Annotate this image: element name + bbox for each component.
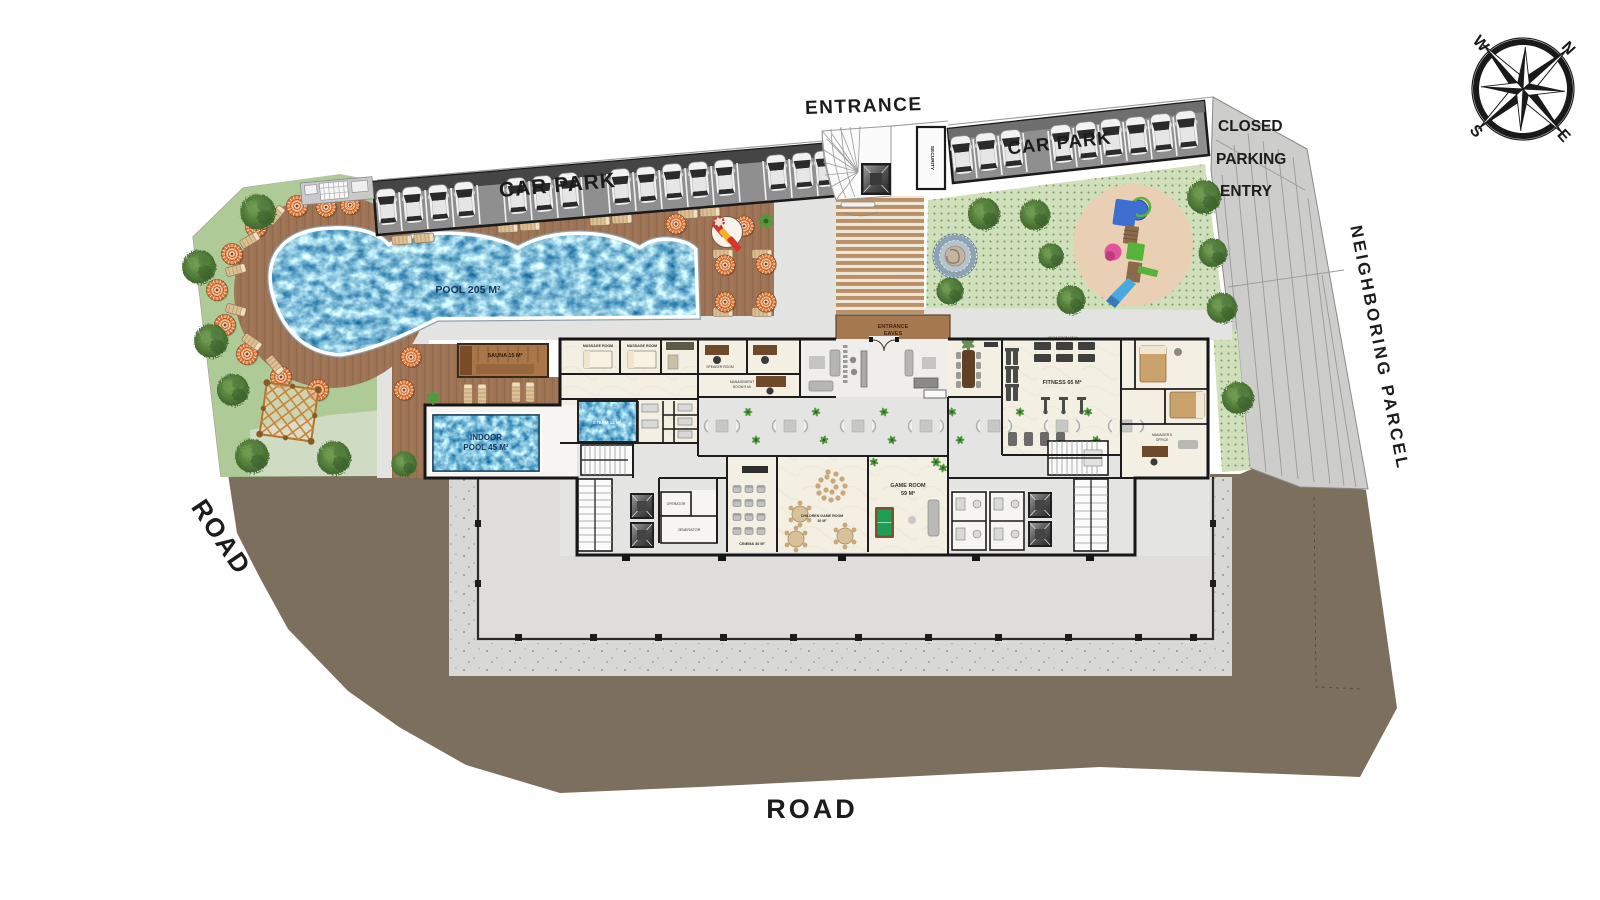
svg-text:OPERATOR: OPERATOR [667, 502, 686, 506]
svg-text:PARKING: PARKING [1216, 151, 1286, 168]
svg-text:MANAGEMENT: MANAGEMENT [730, 380, 754, 384]
svg-text:MANAGER'S: MANAGER'S [1152, 433, 1173, 437]
svg-text:POOL 45 M²: POOL 45 M² [463, 443, 509, 452]
svg-text:MASSAGE ROOM: MASSAGE ROOM [583, 344, 613, 348]
svg-text:CHILDREN GAME ROOM: CHILDREN GAME ROOM [801, 514, 844, 518]
svg-text:30 M²: 30 M² [817, 519, 827, 523]
svg-text:SPEAKER ROOM: SPEAKER ROOM [706, 365, 734, 369]
svg-text:ENTRANCE: ENTRANCE [878, 324, 909, 330]
svg-text:POOL 205 M²: POOL 205 M² [435, 284, 501, 296]
svg-text:MASSAGE ROOM: MASSAGE ROOM [627, 344, 657, 348]
svg-text:ROAD: ROAD [766, 794, 858, 824]
svg-text:FITNESS 65 M²: FITNESS 65 M² [1043, 379, 1082, 386]
svg-text:59 M²: 59 M² [901, 490, 915, 497]
svg-text:JENERATOR: JENERATOR [678, 528, 701, 532]
svg-text:SAUNA 15 M²: SAUNA 15 M² [488, 352, 523, 359]
svg-text:CLOSED: CLOSED [1218, 118, 1283, 135]
svg-text:ENTRY: ENTRY [1220, 183, 1273, 200]
svg-text:ENTRANCE: ENTRANCE [805, 94, 923, 119]
svg-text:CINEMA 30 M²: CINEMA 30 M² [739, 542, 765, 546]
svg-text:ROOM 9 M²: ROOM 9 M² [733, 385, 752, 389]
svg-text:INDOOR: INDOOR [470, 433, 502, 442]
svg-text:OFFICE: OFFICE [1156, 438, 1169, 442]
svg-text:SECURITY: SECURITY [929, 146, 935, 171]
svg-text:STEAM 14 M²: STEAM 14 M² [593, 420, 622, 425]
svg-text:GAME ROOM: GAME ROOM [890, 483, 926, 489]
